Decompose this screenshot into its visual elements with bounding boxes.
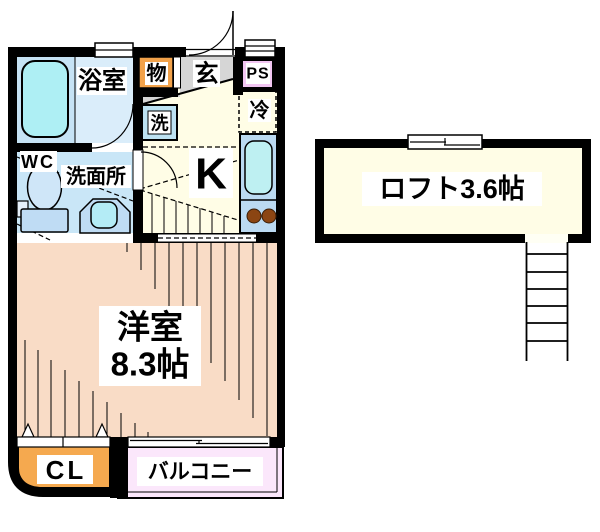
closet-label: CL: [46, 455, 87, 485]
ps-label: PS: [246, 66, 269, 83]
kitchen-room-opening: [158, 235, 256, 242]
kitchen-sink: [245, 141, 272, 194]
ps-vent-window: [245, 40, 275, 57]
bathroom-label: 浴室: [78, 67, 126, 95]
balcony-window: [128, 437, 270, 447]
washbasin-bowl: [91, 202, 117, 228]
entrance-label: 玄: [195, 60, 219, 88]
floor-plan: 浴室 物 玄 PS 冷 洗 WC 洗面所 K 洋室 8.3帖 CL バルコニー …: [0, 0, 600, 532]
washroom-label: 洗面所: [66, 165, 126, 188]
bathroom-window: [95, 43, 133, 57]
loft-ladder-opening: [525, 234, 568, 243]
wc-label: WC: [21, 152, 55, 172]
western-room-label: 洋室: [117, 309, 183, 346]
ladder: [527, 242, 568, 361]
loft-label: ロフト3.6帖: [379, 174, 525, 204]
storage-door-gap: [174, 57, 181, 88]
balcony-label: バルコニー: [148, 461, 253, 484]
washer-label: 洗: [151, 113, 169, 134]
storage-label: 物: [147, 61, 167, 85]
entrance-door: [186, 11, 235, 57]
kitchen-label: K: [195, 150, 227, 199]
stove-burner-right: [262, 209, 276, 223]
refrigerator-label: 冷: [250, 98, 270, 122]
western-room-size: 8.3帖: [111, 346, 190, 383]
stove-burner-left: [247, 209, 261, 223]
loft-window: [408, 135, 482, 149]
toilet-tank: [21, 209, 68, 232]
closet-door-track: [17, 437, 110, 447]
bathtub: [22, 61, 68, 137]
